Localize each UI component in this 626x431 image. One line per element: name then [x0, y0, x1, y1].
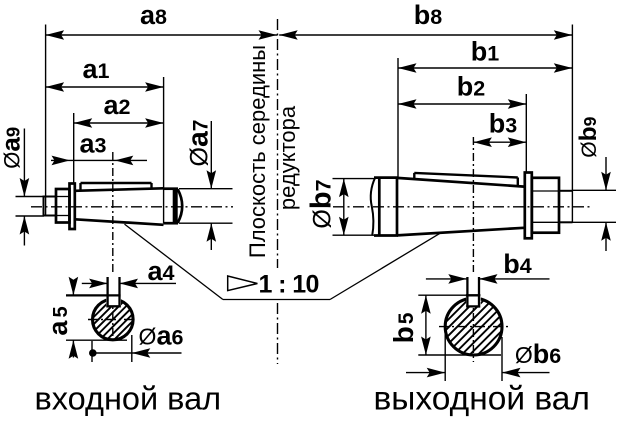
- svg-text:b1: b1: [471, 37, 500, 67]
- svg-text:a8: a8: [140, 0, 167, 30]
- svg-text:b3: b3: [489, 109, 518, 139]
- svg-text:редуктора: редуктора: [275, 105, 300, 210]
- svg-text:a3: a3: [80, 129, 107, 159]
- svg-text:Øb7: Øb7: [306, 179, 338, 228]
- svg-text:Øa6: Øa6: [139, 321, 184, 351]
- svg-text:a5: a5: [43, 303, 73, 335]
- svg-text:выходной вал: выходной вал: [374, 381, 590, 418]
- svg-text:Øb9: Øb9: [575, 116, 602, 157]
- svg-text:b2: b2: [457, 72, 486, 102]
- svg-text:b5: b5: [388, 311, 419, 344]
- svg-text:Øb6: Øb6: [515, 339, 561, 369]
- svg-text:Øa9: Øa9: [0, 127, 26, 169]
- svg-text:a2: a2: [104, 90, 131, 120]
- svg-text:b8: b8: [414, 0, 443, 30]
- svg-text:Øa7: Øa7: [183, 120, 215, 167]
- svg-text:входной вал: входной вал: [35, 381, 222, 417]
- svg-text:1 : 10: 1 : 10: [259, 271, 319, 299]
- svg-text:Плоскость середины: Плоскость середины: [245, 45, 270, 258]
- svg-text:a4: a4: [148, 256, 175, 286]
- svg-text:b4: b4: [503, 249, 532, 279]
- svg-text:a1: a1: [83, 54, 110, 84]
